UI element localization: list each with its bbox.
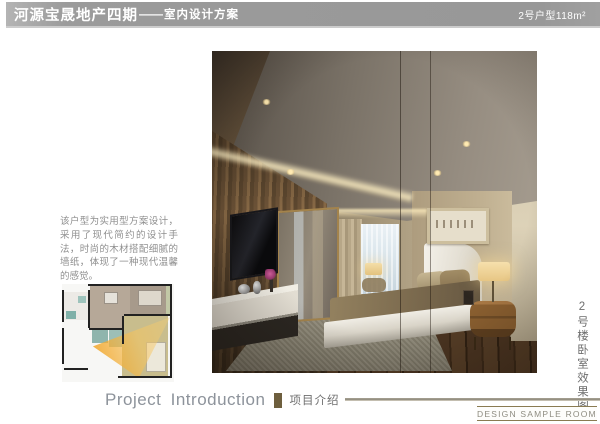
floor-plan-wall: [62, 290, 64, 322]
glass-panel-seam: [400, 51, 401, 373]
reflected-lamp: [365, 263, 382, 275]
rendering-caption: 2号楼卧室效果图: [575, 301, 588, 414]
design-description: 该户型为实用型方案设计，采用了现代简约的设计手法，时尚的木材搭配细腻的墙纸，体现…: [60, 215, 178, 284]
flower-vase: [270, 278, 273, 292]
floor-plan-wall: [62, 328, 64, 364]
floor-plan-wall: [64, 368, 88, 370]
section-title: Project Introduction 项目介绍: [105, 390, 339, 410]
pillow: [362, 278, 386, 292]
footer-rule: [345, 398, 600, 401]
document-type: 室内设计方案: [164, 6, 239, 22]
header-bar: 河源宝晟地产四期 —— 室内设计方案 2号户型118m²: [6, 2, 600, 28]
floor-plan-wall: [170, 284, 172, 378]
floor-plan-wall: [122, 316, 124, 344]
floor-plan: [62, 284, 174, 382]
table-lamp: [478, 262, 510, 281]
floor-plan-wall: [124, 314, 170, 316]
ceiling-spotlight: [462, 141, 471, 147]
ceiling-spotlight: [433, 170, 442, 176]
floor-plan-wall: [88, 284, 172, 286]
nightstand-leg: [474, 337, 476, 350]
section-title-en: Project Introduction: [105, 390, 265, 410]
nightstand: [470, 301, 516, 337]
wall-art-frame: [427, 208, 489, 244]
floor-plan-fixture: [66, 311, 76, 319]
floor-plan-wall: [88, 290, 90, 328]
flower: [265, 269, 276, 280]
floor-plan-fixture: [78, 296, 86, 303]
ceiling-spotlight: [262, 99, 271, 105]
title-divider: ——: [139, 7, 163, 21]
ceiling-spotlight: [286, 169, 295, 175]
nightstand-leg: [509, 337, 511, 350]
floor-plan-room-bath: [92, 330, 108, 343]
presentation-slide: 河源宝晟地产四期 —— 室内设计方案 2号户型118m² 该户型为实用型方案设计…: [0, 0, 600, 424]
decor-teapot: [253, 281, 261, 294]
glass-panel-seam: [430, 51, 431, 373]
project-title: 河源宝晟地产四期: [14, 4, 138, 25]
design-sample-room-stamp: DESIGN SAMPLE ROOM: [477, 406, 591, 421]
bronze-bar-icon: [274, 393, 282, 408]
stamp-label: DESIGN SAMPLE ROOM: [477, 409, 597, 419]
table-lamp-stem: [492, 281, 494, 302]
wall-art-detail: [436, 220, 476, 228]
floor-plan-bed-icon: [138, 290, 162, 306]
decor-teapot: [238, 284, 250, 294]
floor-plan-wall: [89, 328, 123, 330]
unit-type-label: 2号户型118m²: [518, 7, 586, 22]
floor-plan-table-icon: [104, 292, 118, 304]
bedroom-rendering-image: [212, 51, 537, 373]
section-title-zh: 项目介绍: [289, 392, 339, 408]
floor-plan-wall: [118, 376, 172, 378]
stamp-body: DESIGN SAMPLE ROOM: [477, 406, 597, 421]
photo-frame: [463, 290, 474, 305]
